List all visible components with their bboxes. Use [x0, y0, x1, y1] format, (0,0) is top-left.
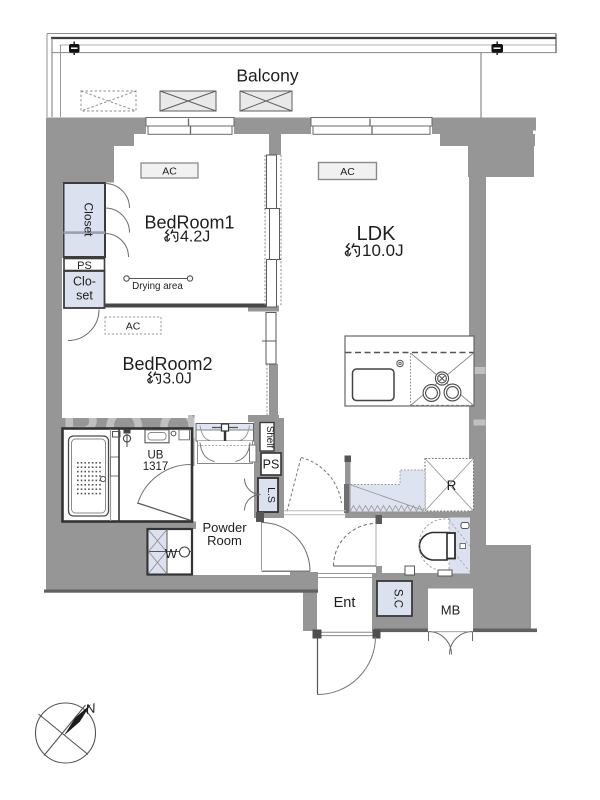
svg-text:W: W — [165, 546, 178, 561]
svg-text:AC: AC — [126, 321, 141, 333]
svg-text:Closet: Closet — [82, 202, 96, 237]
svg-text:S.C: S.C — [392, 589, 404, 608]
svg-text:Clo-: Clo- — [73, 275, 96, 289]
svg-text:4.2J: 4.2J — [180, 228, 210, 245]
svg-text:10.0J: 10.0J — [362, 241, 404, 260]
svg-text:M: M — [532, 394, 575, 452]
svg-text:Ent: Ent — [334, 595, 356, 611]
svg-text:N: N — [84, 700, 96, 717]
svg-text:Drying area: Drying area — [132, 281, 183, 292]
svg-text:AC: AC — [340, 166, 355, 178]
svg-text:Room: Room — [207, 533, 242, 548]
svg-text:R: R — [447, 478, 457, 493]
svg-text:UB: UB — [148, 450, 164, 462]
svg-text:3.0J: 3.0J — [163, 371, 192, 388]
svg-text:set: set — [76, 289, 93, 303]
svg-text:Shelf: Shelf — [264, 426, 275, 449]
svg-text:MB: MB — [441, 603, 461, 618]
svg-text:Balcony: Balcony — [236, 66, 299, 86]
svg-text:L.S: L.S — [265, 487, 277, 503]
svg-text:AC: AC — [162, 166, 177, 178]
svg-text:PS: PS — [263, 458, 280, 472]
